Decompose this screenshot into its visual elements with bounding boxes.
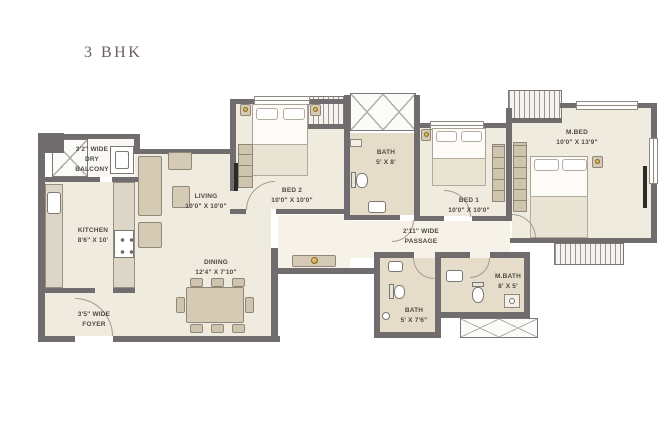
wall-segment (414, 216, 444, 221)
room-dims: 10'0" X 10'0" (442, 206, 496, 216)
wall-segment (113, 288, 135, 293)
wall-segment (374, 252, 380, 338)
dining-table-icon (186, 287, 244, 323)
room-name: BATH (362, 148, 410, 158)
room-name: M.BED (546, 128, 608, 138)
toilet-icon (356, 173, 368, 188)
wardrobe-icon (492, 144, 505, 202)
room-label-dry-balcony: 3'2" WIDE DRY BALCONY (68, 145, 116, 174)
blanket-icon (432, 158, 486, 186)
washbasin-icon (368, 201, 386, 213)
chair-icon (190, 324, 203, 333)
room-label-kitchen: KITCHEN 8'6" X 10' (68, 226, 118, 246)
wall-segment (374, 332, 441, 338)
toilet-icon (394, 285, 405, 299)
room-name: LIVING (180, 192, 232, 202)
wall-segment (441, 252, 470, 258)
room-label-foyer: 3'5" WIDE FOYER (70, 310, 118, 330)
room-dims: 5' X 7'6" (392, 316, 436, 326)
sofa-icon (138, 156, 162, 216)
room-label-bed1: BED 1 10'0" X 10'0" (442, 196, 496, 216)
room-label-bed2: BED 2 10'0" X 10'0" (264, 186, 320, 206)
lamp-icon (313, 107, 318, 112)
wall-segment (38, 133, 45, 342)
pillow-icon (461, 131, 482, 142)
room-label-master-bed: M.BED 10'0" X 13'9" (546, 128, 608, 148)
lamp-icon (424, 132, 429, 137)
side-table-icon (168, 152, 192, 170)
wall-segment (45, 288, 95, 293)
wall-segment (508, 118, 562, 123)
wall-segment (374, 252, 414, 258)
lamp-icon (595, 159, 600, 164)
washbasin-icon (446, 270, 463, 282)
wall-segment (414, 95, 420, 221)
room-dims: 5' X 8' (362, 158, 410, 168)
chair-icon (211, 278, 224, 287)
room-name: 3'2" WIDE (68, 145, 116, 155)
room-name: KITCHEN (68, 226, 118, 236)
room-dims: 10'0" X 10'0" (264, 196, 320, 206)
wall-segment (271, 248, 278, 342)
duct-louver (554, 243, 624, 265)
room-name: M.BATH (486, 272, 530, 282)
room-dims: 10'0" X 13'9" (546, 138, 608, 148)
washbasin-icon (388, 261, 403, 272)
armchair-icon (138, 222, 162, 248)
wall-segment (52, 134, 140, 139)
room-name: PASSAGE (394, 237, 448, 247)
chair-icon (245, 297, 254, 313)
plan-title: 3 BHK (84, 44, 142, 62)
lamp-icon (243, 107, 248, 112)
room-label-bath-bottom: BATH 5' X 7'6" (392, 306, 436, 326)
room-name: DINING (188, 258, 244, 268)
ac-ledge-hatch (350, 93, 416, 131)
pillow-icon (562, 159, 587, 171)
room-dims: 8' X 5' (486, 282, 530, 292)
room-label-living: LIVING 10'0" X 10'0" (180, 192, 232, 212)
blanket-icon (252, 144, 308, 176)
wardrobe-icon (513, 142, 527, 212)
blanket-icon (530, 196, 588, 238)
decor-icon (311, 257, 318, 264)
room-dims: 8'6" X 10' (68, 236, 118, 246)
chair-icon (232, 324, 245, 333)
ac-ledge-hatch (460, 318, 538, 338)
room-label-master-bath: M.BATH 8' X 5' (486, 272, 530, 292)
chair-icon (232, 278, 245, 287)
duct-louver (508, 90, 562, 120)
room-name: 2'11" WIDE (394, 227, 448, 237)
wall-segment (506, 108, 512, 221)
wall-segment (230, 209, 246, 214)
window (576, 101, 638, 110)
wall-segment (441, 312, 530, 318)
wall-segment (45, 177, 100, 182)
shower-head-icon (509, 298, 515, 304)
room-label-dining: DINING 12'4" X 7'10" (188, 258, 244, 278)
chair-icon (211, 324, 224, 333)
floor-plan-canvas: 3 BHK (0, 0, 667, 426)
room-label-bath-top: BATH 5' X 8' (362, 148, 410, 168)
room-name: BED 2 (264, 186, 320, 196)
room-name: BED 1 (442, 196, 496, 206)
toilet-icon (472, 287, 484, 303)
room-name: BATH (392, 306, 436, 316)
room-dims: 10'0" X 10'0" (180, 202, 232, 212)
chair-icon (190, 278, 203, 287)
chair-icon (176, 297, 185, 313)
room-name: BALCONY (68, 165, 116, 175)
wall-segment (113, 336, 280, 342)
bath-shelf (350, 139, 362, 147)
pillow-icon (436, 131, 457, 142)
tv-icon (643, 166, 647, 208)
wardrobe-icon (238, 144, 253, 188)
window (649, 138, 658, 184)
wall-segment (38, 336, 75, 342)
room-label-passage: 2'11" WIDE PASSAGE (394, 227, 448, 247)
room-name: DRY (68, 155, 116, 165)
pillow-icon (256, 108, 278, 120)
wall-segment (510, 238, 657, 243)
room-name: FOYER (70, 320, 118, 330)
shower-icon (382, 312, 390, 320)
room-name: 3'5" WIDE (70, 310, 118, 320)
wall-segment (276, 209, 350, 214)
room-dims: 12'4" X 7'10" (188, 268, 244, 278)
wall-segment (344, 95, 350, 220)
pillow-icon (534, 159, 559, 171)
wall-segment (278, 268, 380, 274)
kitchen-sink-icon (47, 192, 61, 214)
pillow-icon (283, 108, 305, 120)
